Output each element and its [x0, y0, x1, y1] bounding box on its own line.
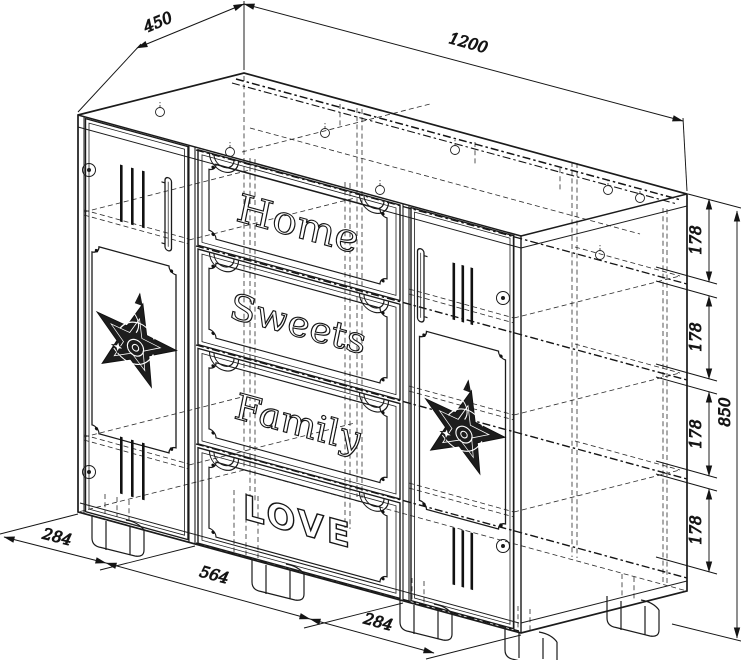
left-door [86, 119, 189, 540]
dimension-depth-label: 450 [140, 8, 175, 37]
drawer-label-family: Family [235, 384, 362, 462]
dimension-drawer-section: 564 [106, 563, 403, 628]
dimension-pitch-label-3: 178 [687, 419, 705, 449]
drawer-label-love: LOVE [243, 488, 353, 557]
cabinet-carcass [78, 73, 687, 633]
dimension-left-section: 284 [0, 514, 195, 570]
dimension-height: 850 [672, 211, 741, 641]
dimension-height-label: 850 [716, 397, 734, 427]
dimension-pitch-label-1: 178 [687, 225, 705, 255]
door-slits-bottom [453, 527, 474, 590]
door-slits-top [120, 165, 145, 229]
dimension-left-section-label: 284 [40, 525, 74, 550]
dimension-width-label: 1200 [447, 29, 490, 57]
right-door [411, 208, 514, 629]
door-handle [418, 248, 428, 324]
dimension-drawer-section-label: 564 [198, 563, 231, 588]
dimension-pitch-label-2: 178 [687, 322, 705, 352]
door-handle [162, 176, 172, 252]
hidden-lines [78, 76, 687, 631]
drawer-label-sweets: Sweets [231, 284, 366, 364]
dimension-right-section: 284 [310, 609, 521, 659]
drawer-1: Home [198, 150, 400, 301]
dimension-pitch: 178 178 178 178 [656, 194, 741, 574]
chain-lines [196, 79, 687, 631]
dimension-right-section-label: 284 [361, 609, 395, 634]
drawer-3: Family [198, 348, 400, 499]
star-ornament-left [91, 279, 181, 395]
drawer-stack: Home Sweets Family [198, 150, 400, 599]
door-slits-top [453, 262, 474, 325]
dimension-width: 1200 [244, 4, 687, 191]
drawer-2: Sweets [198, 249, 400, 400]
dimension-pitch-label-4: 178 [687, 515, 705, 545]
star-ornament-right [420, 366, 510, 482]
dimension-depth: 450 [78, 1, 244, 112]
technical-drawing: Home Sweets Family [0, 0, 741, 660]
drawing-canvas: Home Sweets Family [0, 0, 741, 660]
